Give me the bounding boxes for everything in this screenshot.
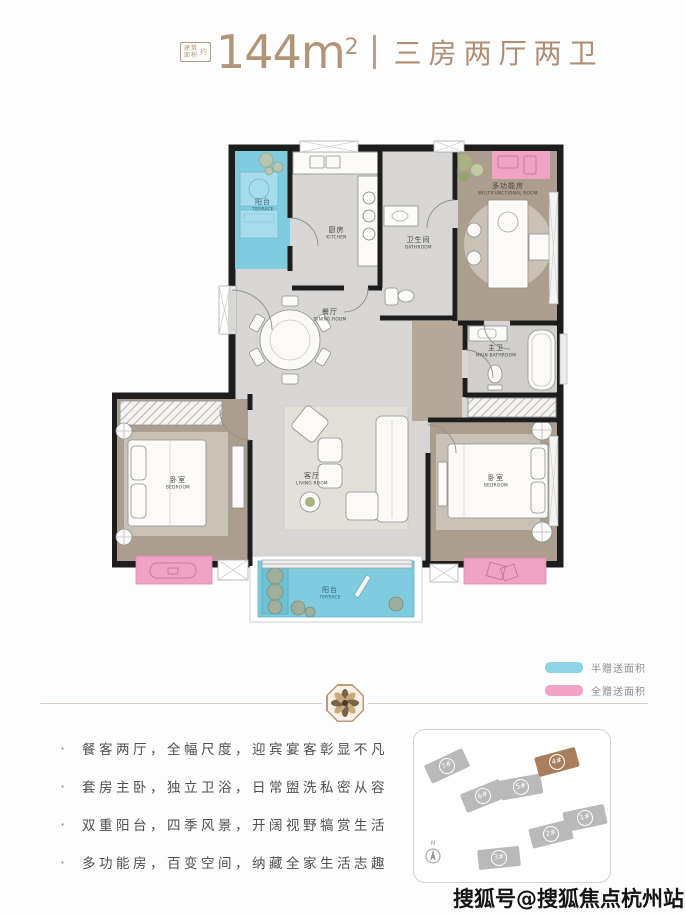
building-label: 1# xyxy=(576,809,595,828)
area-note-suffix: 约 xyxy=(200,47,207,57)
building-block-2: 2# xyxy=(528,819,574,849)
feature-item: · 套房主卧，独立卫浴，日常盥洗私密从容 xyxy=(60,778,388,794)
bullet-icon: · xyxy=(60,815,82,834)
watermark: 搜狐号@搜狐焦点杭州站 xyxy=(453,883,684,913)
rosette-badge xyxy=(326,684,364,722)
building-label: 2# xyxy=(541,824,560,843)
building-label: 6# xyxy=(473,786,494,807)
feature-item: · 多功能房，百变空间，纳藏全家生活志趣 xyxy=(60,854,388,870)
feature-text: 多功能房，百变空间，纳藏全家生活志趣 xyxy=(82,852,388,872)
layout-title: 三房两厅两卫 xyxy=(394,32,604,72)
bullet-icon: · xyxy=(60,739,82,758)
building-label: 5# xyxy=(512,778,531,797)
flower-icon xyxy=(328,686,363,721)
area-note-box: 建筑 面积 约 xyxy=(180,42,211,62)
floorplan: 阳台TERRACE 厨房KITCHEN 卫生间BATHROOM 多功能房MULT… xyxy=(112,140,568,640)
divider-line-right xyxy=(368,703,648,704)
header: 建筑 面积 约 144m2 三房两厅两卫 xyxy=(180,26,604,78)
building-block-5: 5# xyxy=(499,774,544,801)
north-arrow-icon xyxy=(425,847,441,865)
feature-item: · 双重阳台，四季风景，开阔视野犒赏生活 xyxy=(60,816,388,832)
legend-label-full-gift: 全赠送面积 xyxy=(591,683,646,698)
building-block-7: 7# xyxy=(424,748,471,784)
page: 建筑 面积 约 144m2 三房两厅两卫 xyxy=(0,0,686,914)
north-label: N xyxy=(424,840,442,847)
building-label: 3# xyxy=(490,849,508,867)
building-label: 4# xyxy=(547,752,567,772)
bullet-icon: · xyxy=(60,777,82,796)
siteplan-box: 7# 6# 5# 4# 1# 2# 3# N xyxy=(413,729,611,883)
floorplan-drawing xyxy=(112,140,568,640)
feature-text: 餐客两厅，全幅尺度，迎宾宴客彰显不凡 xyxy=(82,738,388,758)
feature-text: 双重阳台，四季风景，开阔视野犒赏生活 xyxy=(82,814,388,834)
legend-swatch-half-gift xyxy=(545,662,583,673)
legend: 半赠送面积 全赠送面积 xyxy=(545,660,646,698)
legend-item-half-gift: 半赠送面积 xyxy=(545,660,646,675)
legend-item-full-gift: 全赠送面积 xyxy=(545,683,646,698)
header-divider-bar xyxy=(373,35,376,69)
divider-line-left xyxy=(40,703,322,704)
area-note-line2: 面积 xyxy=(184,52,198,59)
features-list: · 餐客两厅，全幅尺度，迎宾宴客彰显不凡 · 套房主卧，独立卫浴，日常盥洗私密从… xyxy=(60,740,388,892)
feature-text: 套房主卧，独立卫浴，日常盥洗私密从容 xyxy=(82,776,388,796)
legend-swatch-full-gift xyxy=(545,685,583,696)
bullet-icon: · xyxy=(60,853,82,872)
area-note-line1: 建筑 xyxy=(184,45,198,52)
building-block-4-highlighted: 4# xyxy=(534,747,580,777)
building-label: 7# xyxy=(436,755,457,776)
building-block-3: 3# xyxy=(477,846,521,870)
feature-item: · 餐客两厅，全幅尺度，迎宾宴客彰显不凡 xyxy=(60,740,388,756)
legend-label-half-gift: 半赠送面积 xyxy=(591,660,646,675)
area-superscript: 2 xyxy=(345,35,359,60)
north-indicator: N xyxy=(424,840,442,869)
area-value: 144m2 xyxy=(216,29,359,75)
